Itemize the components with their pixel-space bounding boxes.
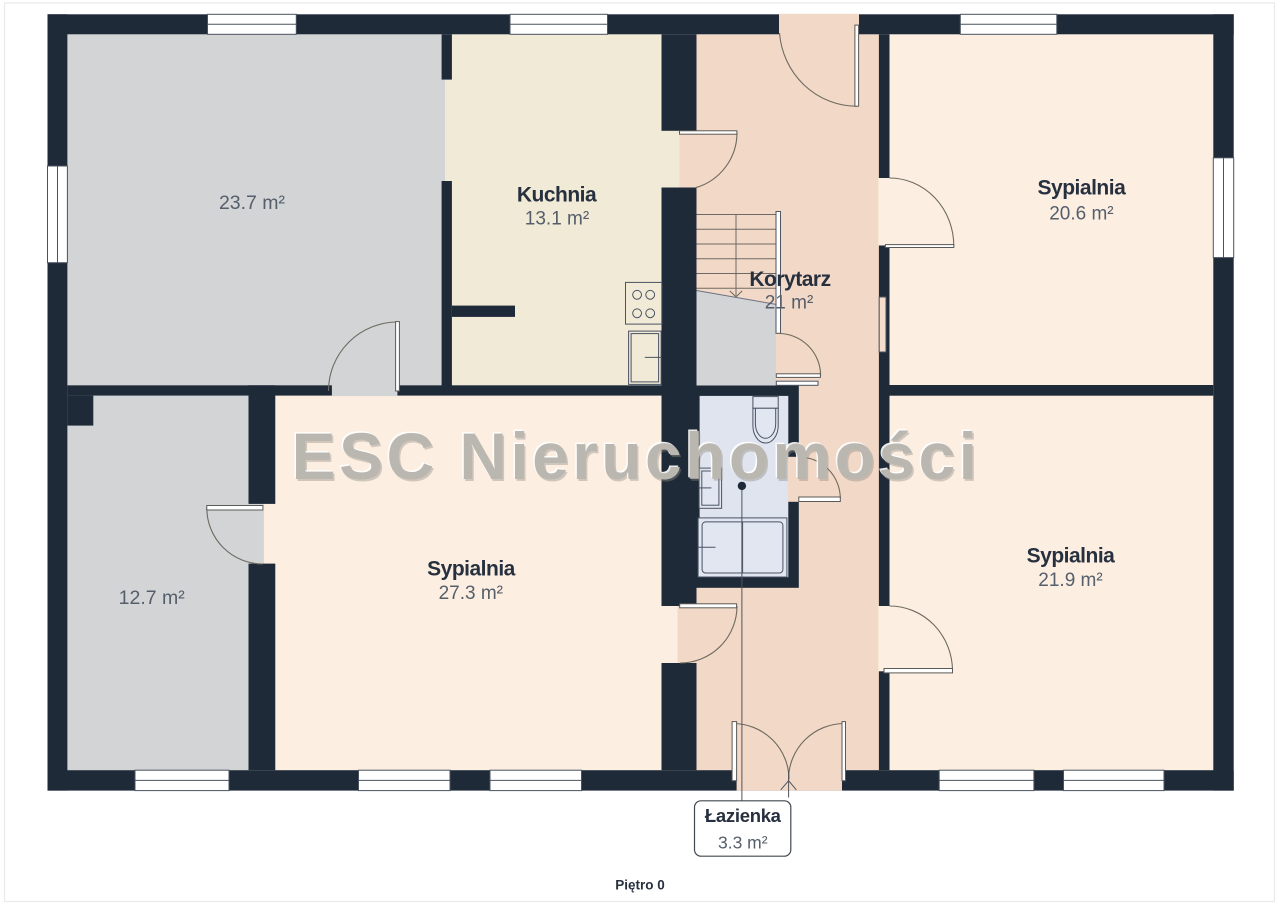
svg-text:Kuchnia: Kuchnia — [517, 184, 597, 207]
svg-text:23.7 m²: 23.7 m² — [219, 192, 286, 214]
svg-text:21.9 m²: 21.9 m² — [1038, 570, 1102, 591]
svg-text:Sypialnia: Sypialnia — [427, 558, 516, 581]
svg-text:12.7 m²: 12.7 m² — [119, 587, 186, 609]
svg-text:3.3 m²: 3.3 m² — [718, 832, 768, 852]
svg-text:20.6 m²: 20.6 m² — [1049, 204, 1113, 225]
svg-text:21 m²: 21 m² — [765, 293, 814, 314]
svg-text:Piętro 0: Piętro 0 — [615, 878, 665, 893]
svg-text:Korytarz: Korytarz — [749, 268, 830, 291]
svg-text:Łazienka: Łazienka — [705, 805, 782, 826]
svg-text:Sypialnia: Sypialnia — [1027, 545, 1116, 568]
svg-text:27.3 m²: 27.3 m² — [439, 583, 503, 604]
svg-text:13.1 m²: 13.1 m² — [525, 209, 589, 230]
svg-text:Sypialnia: Sypialnia — [1038, 177, 1127, 200]
svg-text:ESC Nieruchomości: ESC Nieruchomości — [292, 419, 981, 493]
